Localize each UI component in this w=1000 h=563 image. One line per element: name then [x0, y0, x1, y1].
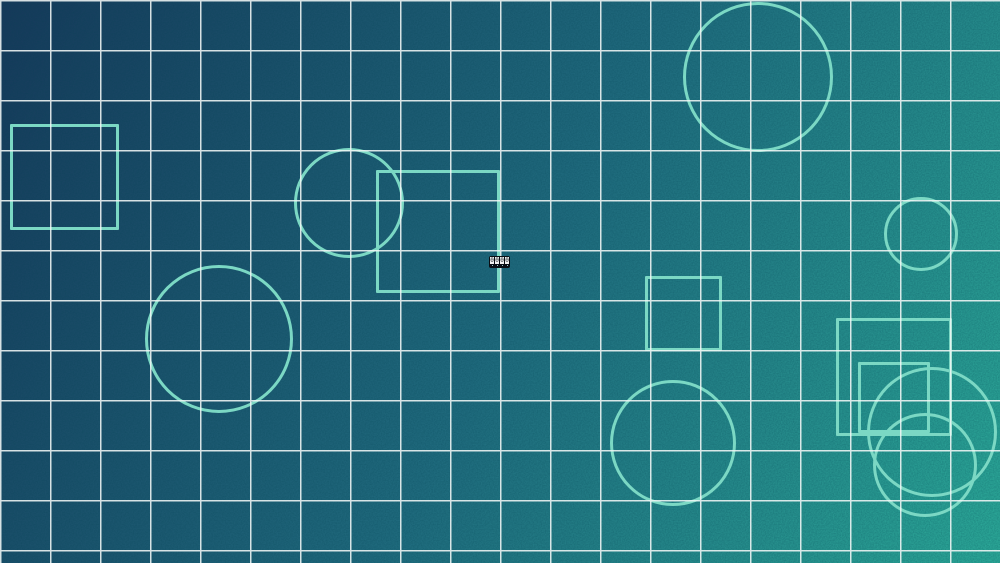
glyph-dot: [507, 265, 508, 266]
shape-square: [10, 124, 119, 230]
glyph-badge: 0000: [489, 256, 510, 268]
glyph-dots: [490, 264, 509, 268]
glyph-char: 0: [495, 257, 499, 264]
shape-canvas: 0000: [0, 0, 1000, 563]
shape-square: [645, 276, 722, 351]
shape-layer: [0, 0, 1000, 563]
shape-circle: [610, 380, 736, 506]
shape-circle: [884, 197, 958, 271]
shape-circle: [145, 265, 293, 413]
glyph-char: 0: [500, 257, 504, 264]
shape-square: [376, 170, 500, 293]
shape-circle: [683, 2, 833, 152]
glyph-char: 0: [505, 257, 509, 264]
glyph-dot: [502, 265, 503, 266]
glyph-char: 0: [490, 257, 494, 264]
glyph-dot: [497, 265, 498, 266]
glyph-dot: [492, 265, 493, 266]
glyph-chars: 0000: [490, 257, 509, 264]
shape-circle: [873, 413, 977, 517]
